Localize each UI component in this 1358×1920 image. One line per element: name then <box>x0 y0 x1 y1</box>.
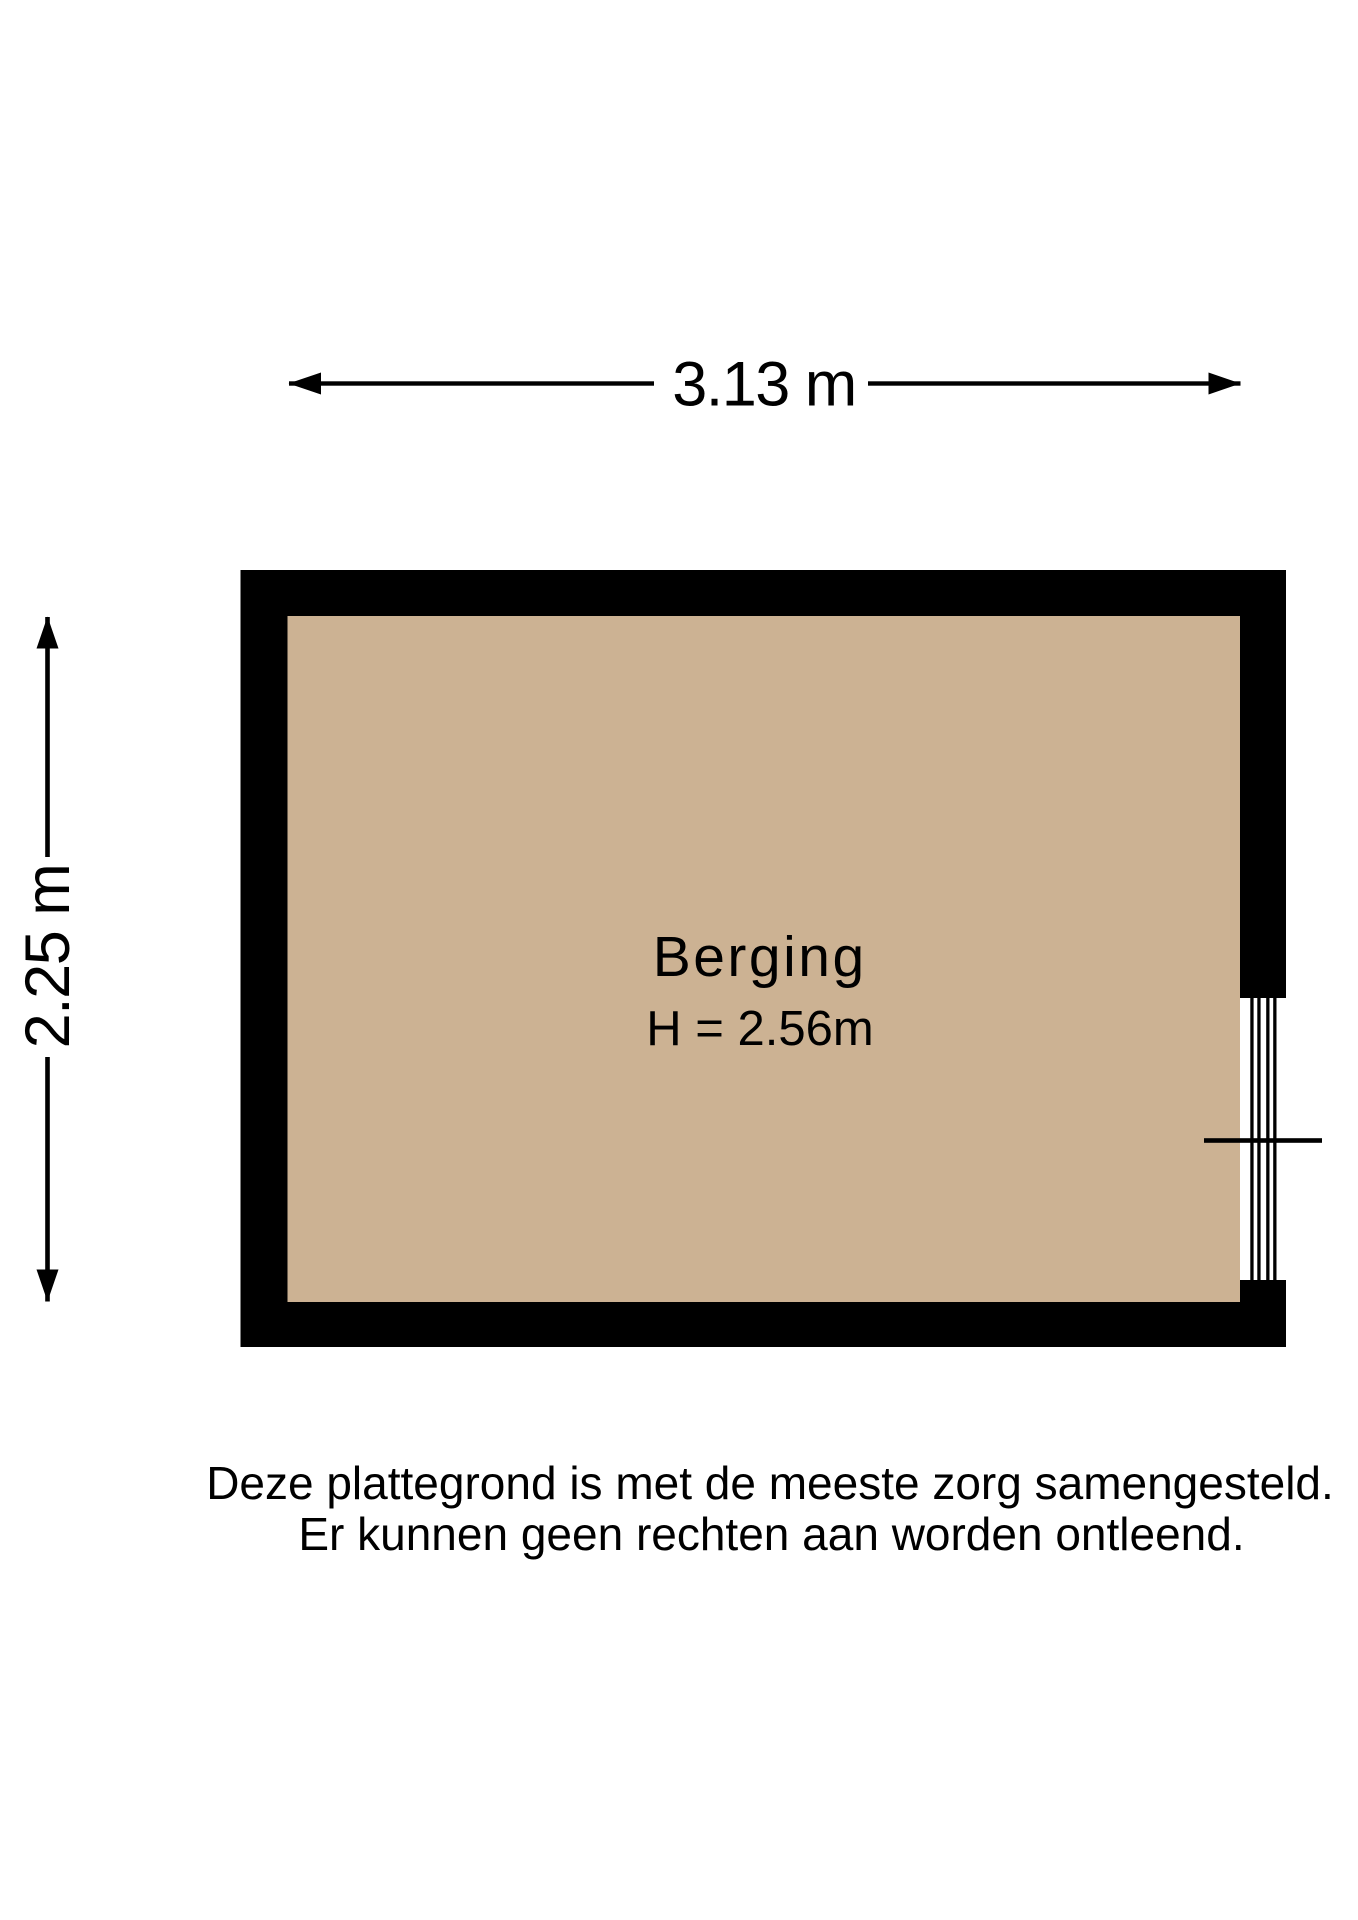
svg-text:Berging: Berging <box>653 925 867 989</box>
svg-text:H = 2.56m: H = 2.56m <box>646 1002 873 1056</box>
svg-text:Deze plattegrond is met de mee: Deze plattegrond is met de meeste zorg s… <box>206 1457 1334 1509</box>
svg-text:3.13 m: 3.13 m <box>672 350 856 420</box>
svg-text:2.25 m: 2.25 m <box>13 865 83 1049</box>
svg-text:Er kunnen geen rechten aan wor: Er kunnen geen rechten aan worden ontlee… <box>298 1508 1244 1560</box>
